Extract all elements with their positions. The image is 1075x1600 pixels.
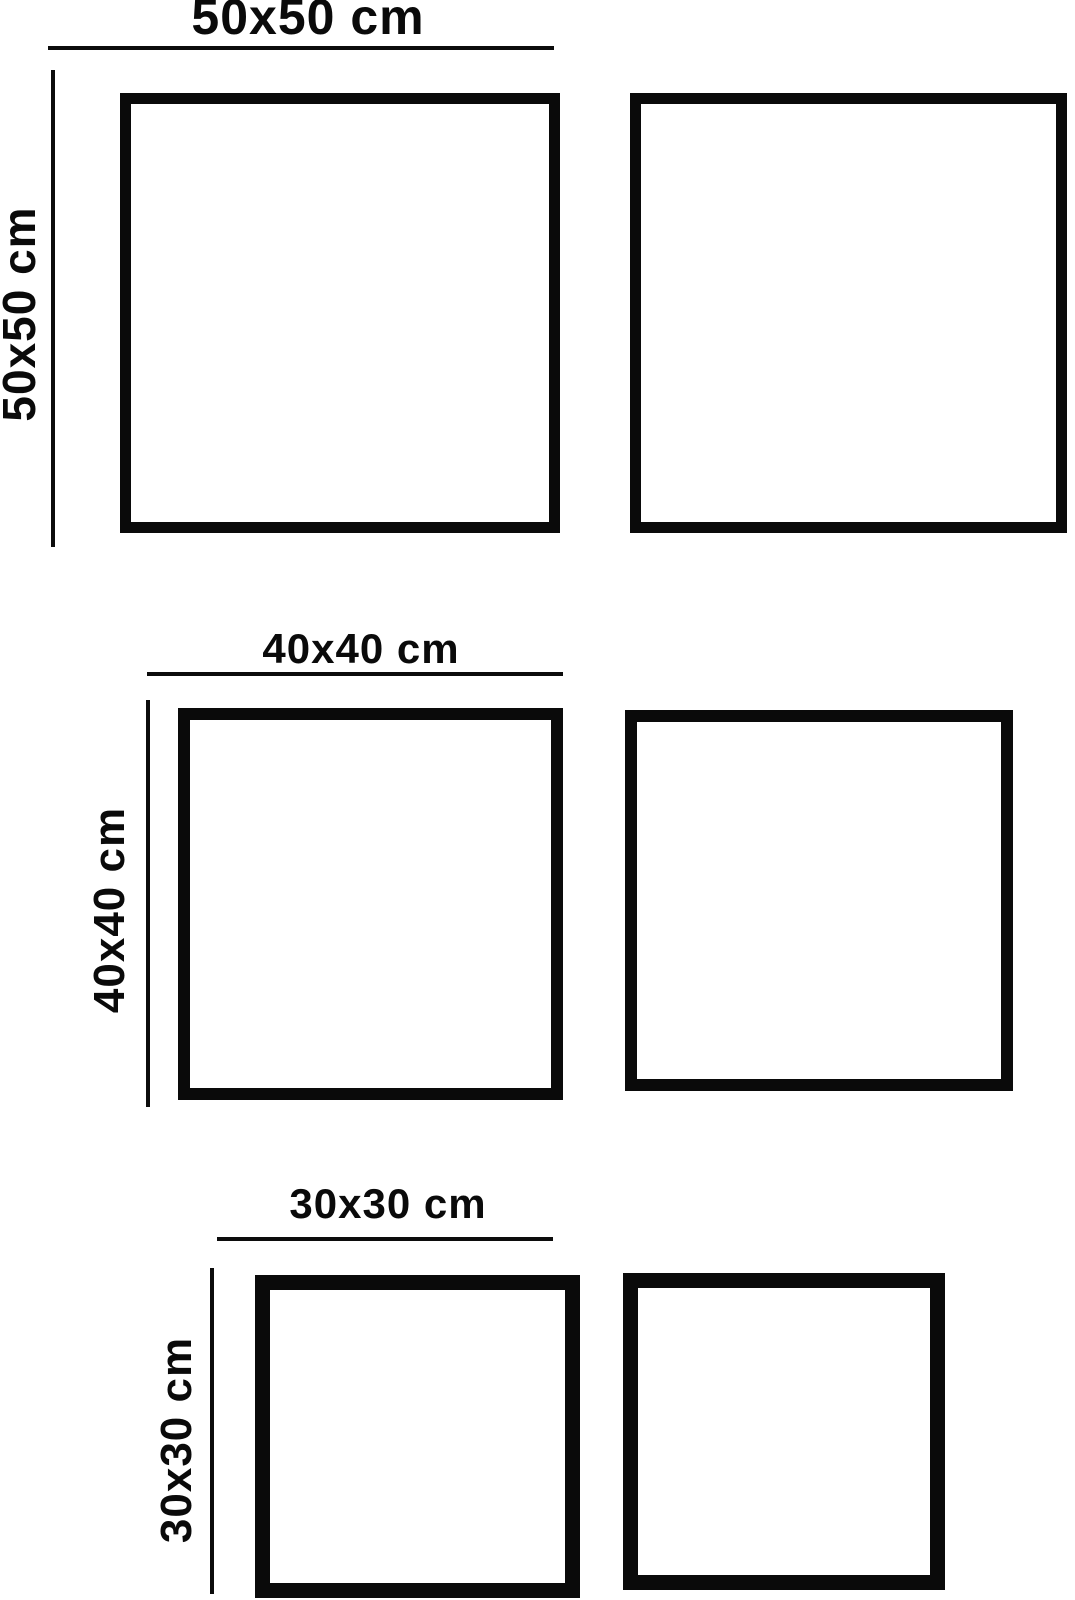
width-dimension-line-30x30: [217, 1237, 553, 1241]
width-label-50x50: 50x50 cm: [58, 0, 558, 42]
square-frame-50x50-left: [120, 93, 560, 533]
size-diagram: 50x50 cm 50x50 cm 40x40 cm 40x40 cm 30x3…: [0, 0, 1075, 1600]
height-label-40x40: 40x40 cm: [85, 760, 135, 1060]
height-dimension-line-30x30: [210, 1268, 214, 1594]
width-label-30x30: 30x30 cm: [138, 1183, 638, 1225]
square-frame-40x40-left: [178, 708, 563, 1100]
width-dimension-line-40x40: [147, 672, 563, 676]
square-frame-30x30-left: [255, 1275, 580, 1598]
width-label-40x40: 40x40 cm: [111, 628, 611, 670]
square-frame-30x30-right: [623, 1273, 945, 1590]
height-label-50x50: 50x50 cm: [0, 164, 44, 464]
height-dimension-line-40x40: [146, 700, 150, 1107]
square-frame-50x50-right: [630, 93, 1067, 533]
height-label-30x30: 30x30 cm: [152, 1290, 202, 1590]
square-frame-40x40-right: [625, 710, 1013, 1091]
width-dimension-line-50x50: [48, 46, 554, 50]
height-dimension-line-50x50: [51, 70, 55, 547]
